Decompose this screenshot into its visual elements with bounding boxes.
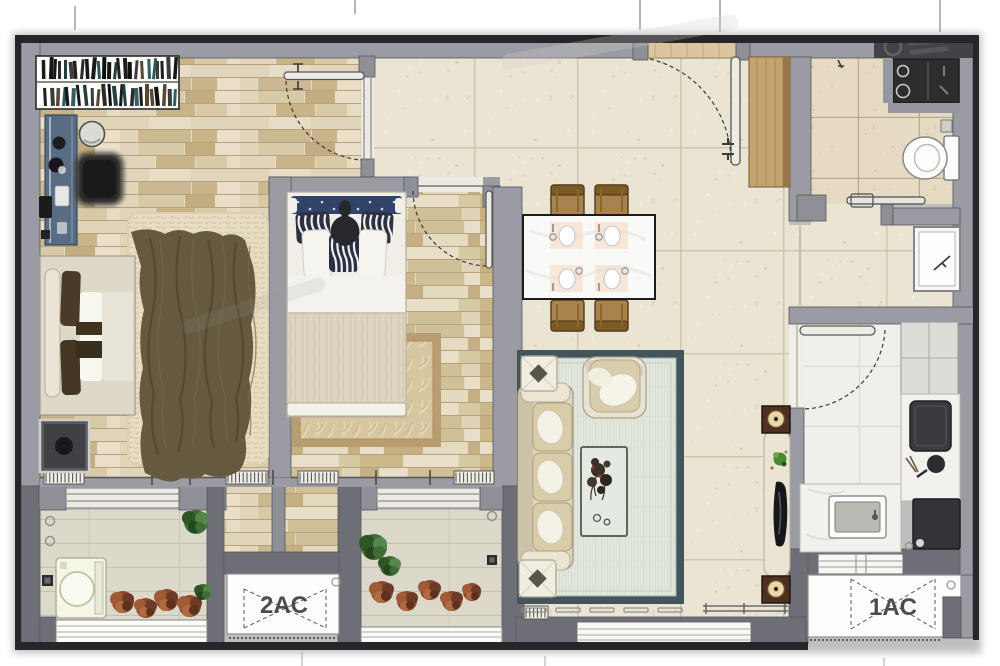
svg-text:2AC: 2AC (260, 592, 308, 619)
svg-text:1AC: 1AC (869, 594, 917, 621)
